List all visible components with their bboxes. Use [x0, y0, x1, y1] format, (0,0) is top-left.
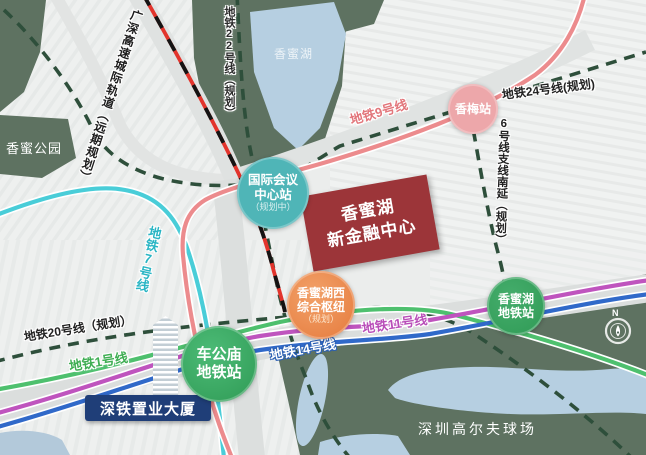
station-name-line1: 香蜜湖: [498, 292, 534, 306]
metro-line22-label: 地铁22号线（规划）: [221, 6, 237, 118]
park-label: 香蜜公园: [6, 138, 62, 157]
tower-name-text: 深铁置业大厦: [100, 398, 196, 419]
lake-label: 香蜜湖: [274, 45, 313, 62]
station-name-line1: 车公庙: [196, 346, 241, 364]
skyscraper-icon: [153, 316, 178, 398]
station-note: （规划中）: [250, 202, 295, 213]
map-canvas: 香蜜公园 香蜜湖 深圳高尔夫球场 广深高速城际轨道（远期规划） 地铁22号线（规…: [0, 0, 646, 455]
station-name: 香梅站: [455, 102, 491, 116]
station-badge-xiangmihu-west-hub: 香蜜湖西 综合枢纽 （规划）: [287, 271, 355, 339]
station-name-line1: 国际会议: [248, 173, 298, 188]
golf-course-label: 深圳高尔夫球场: [418, 419, 537, 439]
station-name-line2: 综合枢纽: [297, 300, 345, 314]
station-badge-xiangmei: 香梅站: [448, 84, 498, 134]
tower-name-plate: 深铁置业大厦: [85, 395, 211, 421]
station-badge-intl-conference-center: 国际会议 中心站 （规划中）: [237, 157, 309, 229]
station-badge-xiangmihu: 香蜜湖 地铁站: [487, 277, 545, 335]
compass-north-label: N: [612, 308, 619, 318]
station-name-line2: 地铁站: [196, 364, 241, 382]
station-name-line2: 中心站: [254, 188, 292, 203]
station-badge-chegongmiao: 车公庙 地铁站: [181, 326, 257, 402]
station-note: （规划）: [303, 314, 339, 325]
station-name-line2: 地铁站: [498, 306, 534, 320]
station-name-line1: 香蜜湖西: [297, 286, 345, 300]
